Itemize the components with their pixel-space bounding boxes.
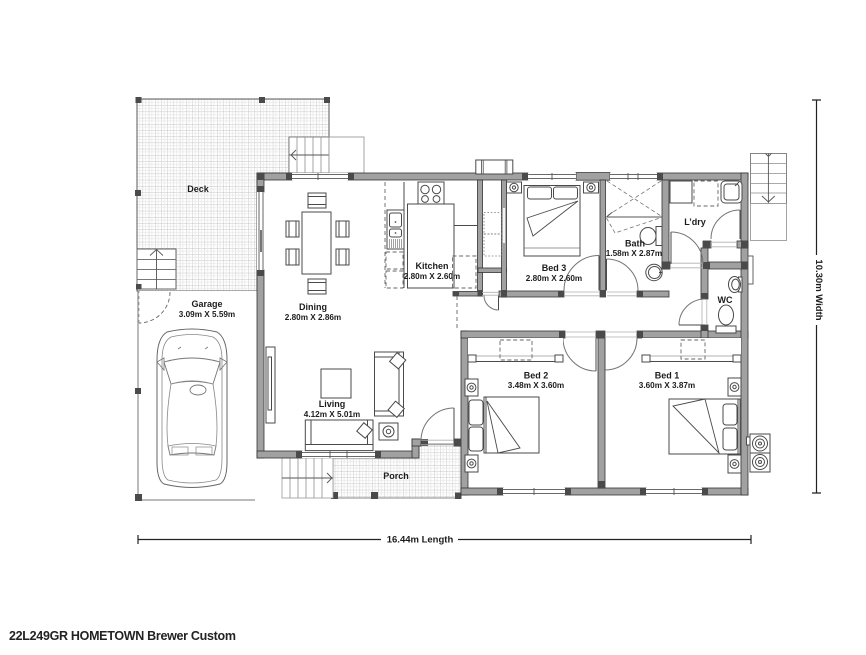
svg-text:Deck: Deck xyxy=(187,184,210,194)
svg-text:16.44m Length: 16.44m Length xyxy=(387,535,454,546)
svg-text:4.12m X 5.01m: 4.12m X 5.01m xyxy=(304,410,360,419)
svg-text:2.80m X 2.86m: 2.80m X 2.86m xyxy=(285,313,341,322)
svg-text:2.80m X 2.60m: 2.80m X 2.60m xyxy=(526,274,582,283)
svg-text:Bed 2: Bed 2 xyxy=(524,371,549,381)
svg-text:10.30m Width: 10.30m Width xyxy=(813,259,824,320)
svg-text:22L249GR HOMETOWN Brewer Custo: 22L249GR HOMETOWN Brewer Custom xyxy=(9,629,236,643)
svg-text:WC: WC xyxy=(718,295,733,305)
svg-text:Porch: Porch xyxy=(383,471,409,481)
svg-text:3.60m X 3.87m: 3.60m X 3.87m xyxy=(639,381,695,390)
svg-text:2.80m X 2.60m: 2.80m X 2.60m xyxy=(404,272,460,281)
svg-text:Living: Living xyxy=(319,399,346,409)
svg-text:L’dry: L’dry xyxy=(684,217,706,227)
svg-text:Bath: Bath xyxy=(625,239,645,249)
svg-text:Bed 3: Bed 3 xyxy=(542,263,567,273)
svg-text:Garage: Garage xyxy=(191,299,222,309)
svg-text:1.58m X 2.87m: 1.58m X 2.87m xyxy=(606,249,662,258)
svg-text:3.09m X 5.59m: 3.09m X 5.59m xyxy=(179,310,235,319)
svg-text:3.48m X 3.60m: 3.48m X 3.60m xyxy=(508,381,564,390)
svg-text:Bed 1: Bed 1 xyxy=(655,371,680,381)
svg-text:Dining: Dining xyxy=(299,302,327,312)
svg-text:Kitchen: Kitchen xyxy=(415,261,448,271)
